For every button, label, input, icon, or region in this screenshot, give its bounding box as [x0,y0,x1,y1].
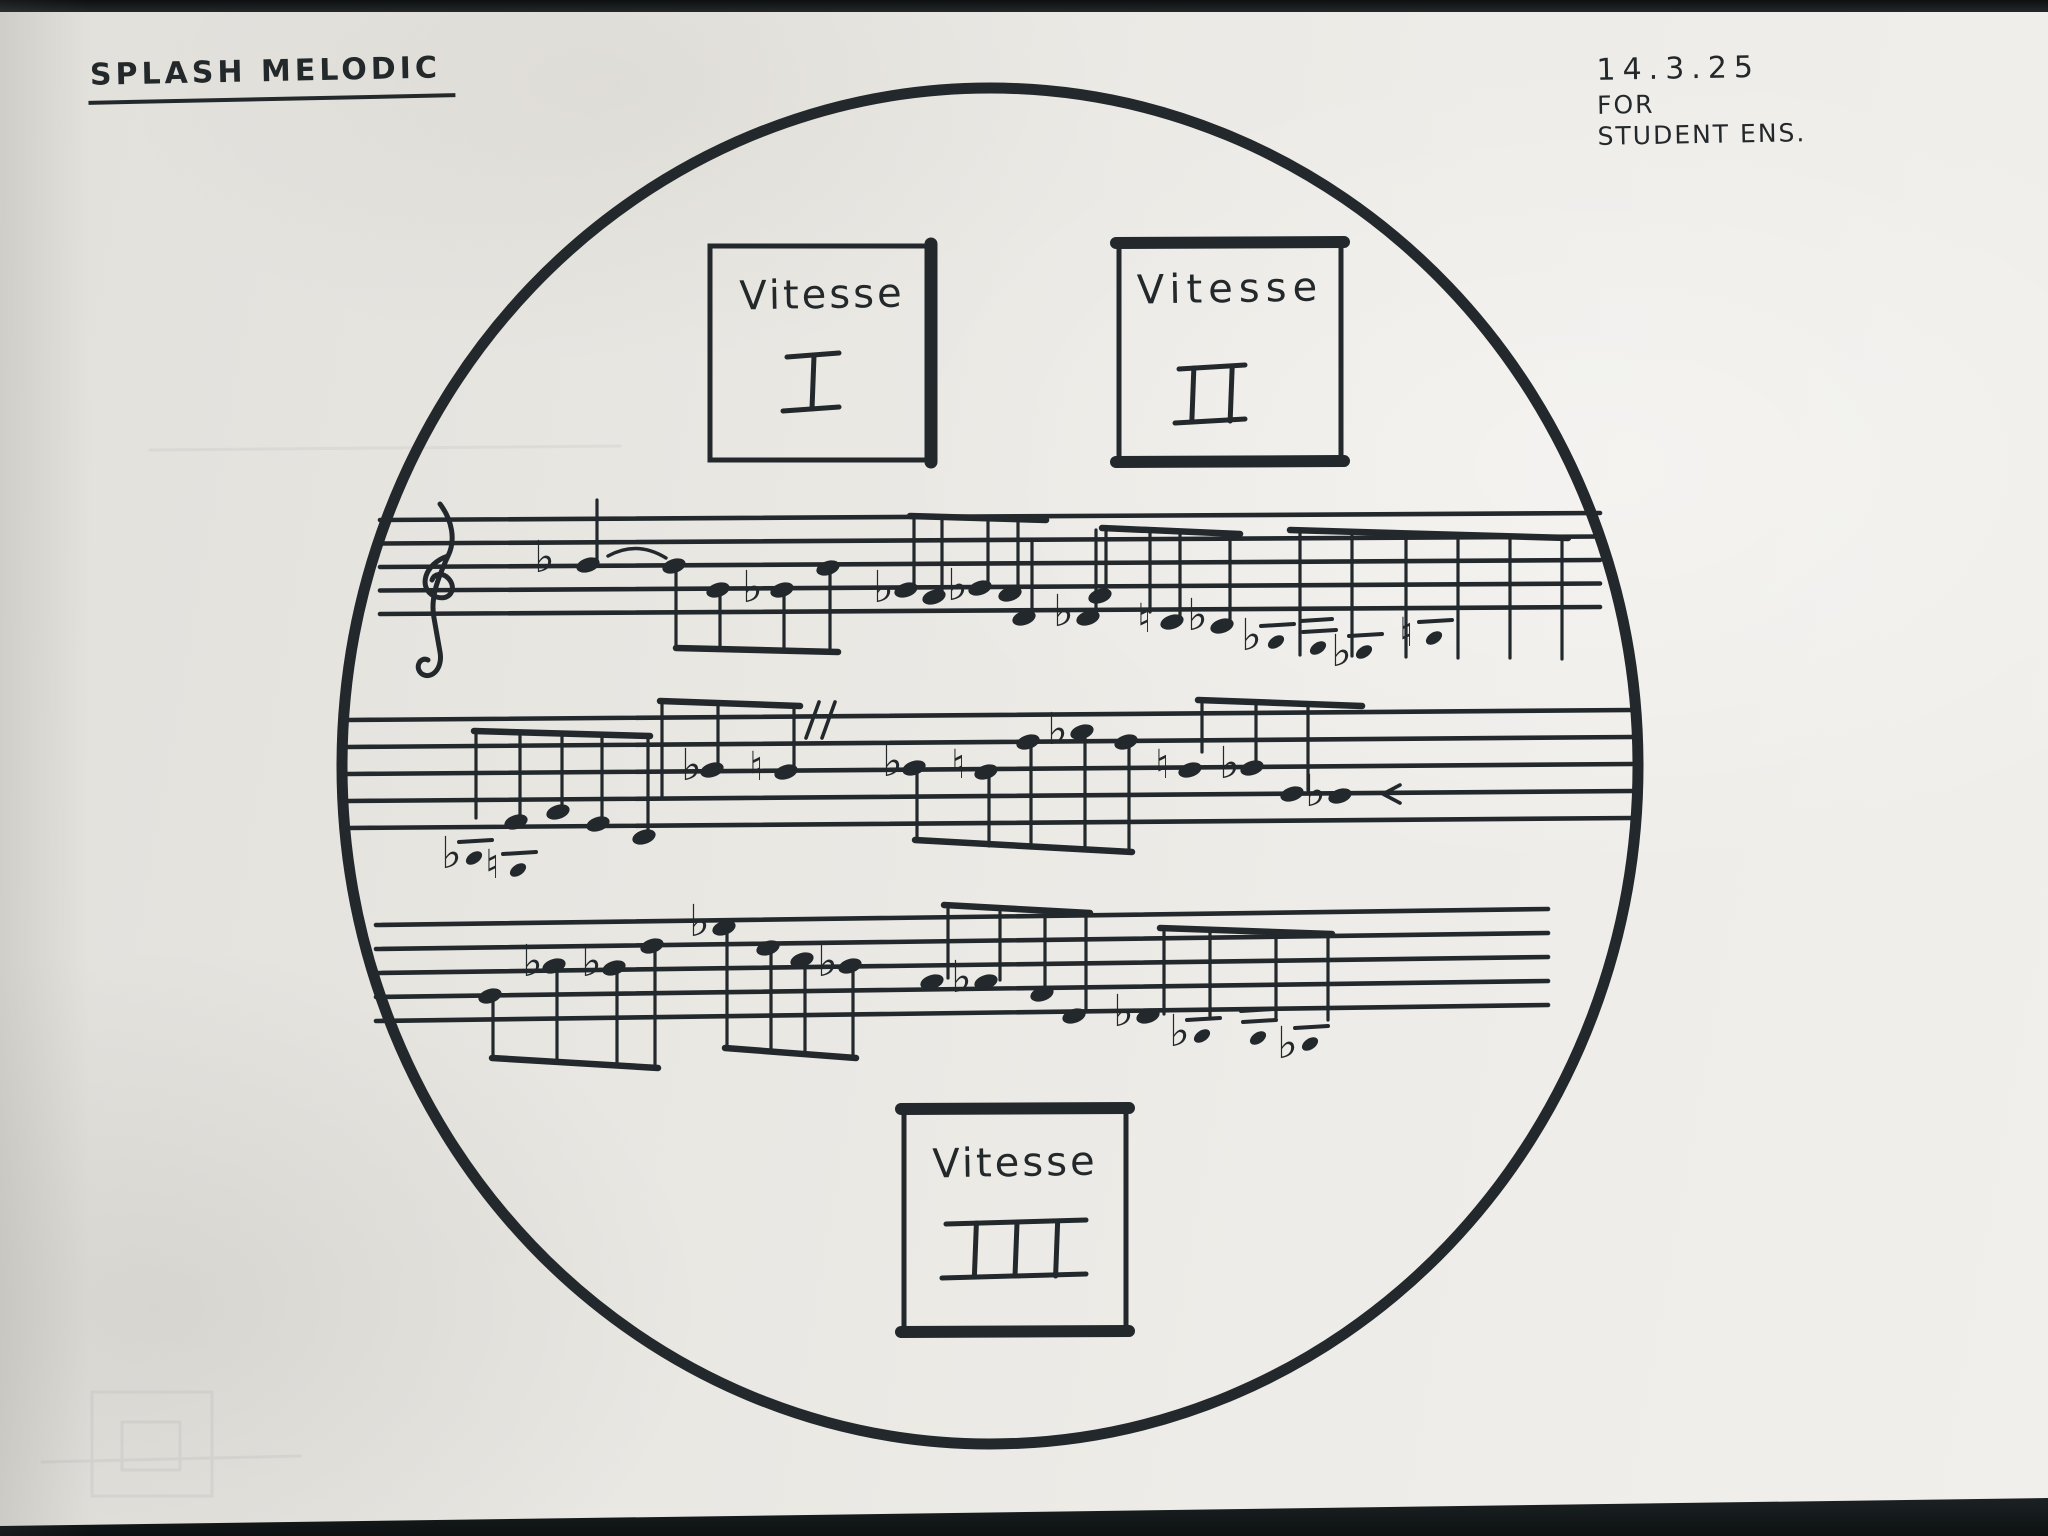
note-head [1278,784,1305,805]
note-head [1060,1006,1087,1027]
overlined-note-head [463,848,484,867]
flat-accidental: ♭ [1053,586,1074,637]
staff-line [380,560,1600,567]
note-head [768,580,795,601]
vitesse-box-III [901,1108,1129,1332]
overlined-note-head [1191,1026,1212,1045]
box-thick-edge [901,1331,1129,1332]
natural-accidental: ♮ [749,744,763,790]
note-head [1326,786,1353,807]
note-head [698,760,725,781]
flat-accidental: ♭ [534,532,555,583]
note-head [972,762,999,783]
natural-accidental: ♮ [1137,596,1151,642]
beam [725,1048,856,1058]
natural-accidental: ♮ [951,742,965,788]
flat-accidental: ♭ [522,936,543,987]
staff-line [376,933,1548,949]
note-head [630,827,657,848]
flat-accidental: ♭ [1305,766,1326,817]
staff-2: ♭♮♭♮♭♮♭♮♭♭ [348,700,1632,888]
overlined-note-head [1247,1028,1268,1047]
note-head [704,580,731,601]
note-overline [503,852,536,854]
flat-accidental: ♭ [742,562,763,613]
flat-accidental: ♭ [1277,1018,1298,1069]
flat-accidental: ♭ [1241,610,1262,661]
note-overline [1261,624,1294,626]
flat-accidental: ♭ [1187,590,1208,641]
note-head [540,956,567,977]
beam [944,905,1090,913]
note-overline [1295,1026,1328,1028]
flat-accidental: ♭ [681,740,702,791]
natural-accidental: ♮ [485,842,499,888]
numeral-stroke [974,1223,976,1276]
overlined-note-head [1307,638,1328,657]
flat-accidental: ♭ [947,560,968,611]
flat-accidental: ♭ [882,736,903,787]
staff-line [376,1005,1548,1021]
note-head [814,558,841,579]
numeral-bottom-bar [1175,419,1245,423]
note-overline [1349,634,1382,636]
note-overline [1301,619,1332,621]
flat-accidental: ♭ [441,828,462,879]
flat-accidental: ♭ [817,936,838,987]
note-overline [1187,1018,1220,1020]
staff-line [380,537,1600,544]
numeral-stroke [1192,368,1194,421]
beam [915,840,1132,852]
box-outline [1119,242,1341,462]
numeral-stroke [1056,1223,1058,1276]
flat-accidental: ♭ [1047,704,1068,755]
roman-numeral-III [942,1220,1086,1278]
flat-accidental: ♭ [1219,738,1240,789]
staff-3: ♭♭♭♭♭♭♭♭ [376,896,1548,1069]
natural-accidental: ♮ [1155,742,1169,788]
caesura-mark [806,702,819,738]
note-head [836,956,863,977]
numeral-top-bar [1179,365,1245,369]
vitesse-box-II [1116,242,1344,462]
overlined-note-head [1353,642,1374,661]
beam [1102,528,1240,534]
flat-accidental: ♭ [1331,626,1352,677]
flat-accidental: ♭ [873,562,894,613]
beam [1160,928,1332,934]
note-head [1238,758,1265,779]
overlined-note-head [1423,628,1444,647]
note-head [1086,586,1113,607]
note-overline [1419,620,1452,622]
box-thick-edge [1116,242,1344,243]
photo-of-handwritten-score: SPLASH MELODIC 14.3.25 FOR STUDENT ENS. … [0,0,2048,1536]
numeral-stroke [812,356,814,409]
note-head [1014,732,1041,753]
overlined-note-head [1299,1034,1320,1053]
beam [1198,700,1362,706]
box-thick-edge [901,1108,1129,1109]
beam [910,516,1046,520]
overlined-note-head [507,860,528,879]
beam [660,701,800,706]
note-head [502,812,529,833]
roman-numeral-I [783,353,839,411]
roman-numeral-II [1175,365,1245,423]
tie-slur [608,548,666,558]
numeral-stroke [1230,368,1232,421]
note-overline [1243,1020,1276,1022]
note-head [1176,760,1203,781]
note-head [476,986,503,1007]
note-head [544,802,571,823]
note-head [584,814,611,835]
staff-line [348,737,1632,747]
note-overline [1241,1009,1272,1011]
note-head [900,758,927,779]
note-head [600,958,627,979]
box-thick-edge [1116,461,1344,462]
staff-line [376,909,1548,925]
flat-accidental: ♭ [951,952,972,1003]
beam [676,648,838,652]
caesura-mark [822,702,835,738]
note-head [638,936,665,957]
overlined-note-head [1265,632,1286,651]
flat-accidental: ♭ [1113,986,1134,1037]
staff-line [348,710,1632,720]
score-drawing: ♭♭♭♭♭♮♭♭♭♮♭♮♭♮♭♮♭♮♭♭♭♭♭♭♭♭♭♭ [0,0,2048,1536]
flat-accidental: ♭ [1169,1006,1190,1057]
flat-accidental: ♭ [581,936,602,987]
staff-1: ♭♭♭♭♭♮♭♭♭♮ [380,500,1600,677]
numeral-stroke [1015,1223,1017,1276]
beam [492,1058,658,1068]
staff-line [380,607,1600,614]
flat-accidental: ♭ [689,896,710,947]
note-head [754,938,781,959]
vitesse-box-I [710,244,934,462]
note-head [1112,732,1139,753]
